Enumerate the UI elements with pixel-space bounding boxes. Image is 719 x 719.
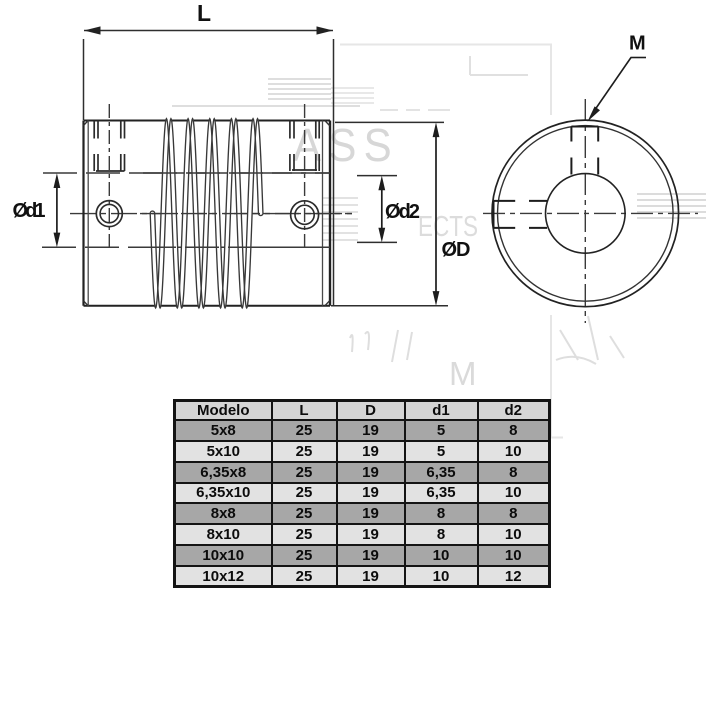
svg-text:ØD: ØD (442, 239, 471, 261)
svg-text:M: M (449, 355, 477, 392)
svg-text:Ød2: Ød2 (385, 201, 420, 223)
svg-text:M: M (629, 33, 646, 55)
svg-text:Ød1: Ød1 (13, 200, 46, 222)
svg-text:ASS: ASS (293, 119, 399, 171)
svg-text:L: L (197, 0, 211, 26)
